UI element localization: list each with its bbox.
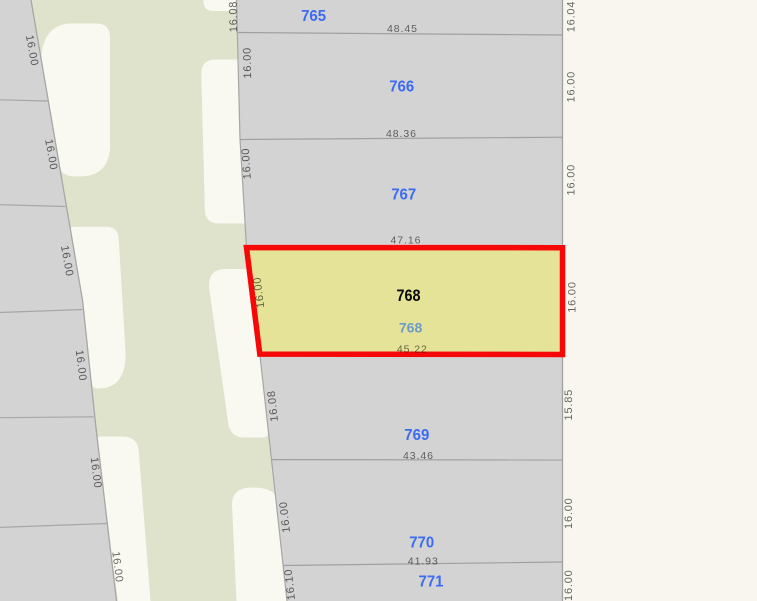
svg-text:15.85: 15.85 — [563, 389, 575, 421]
svg-text:16.04: 16.04 — [566, 1, 578, 33]
svg-text:47.16: 47.16 — [391, 235, 421, 247]
svg-text:771: 771 — [419, 574, 444, 591]
svg-text:16.00: 16.00 — [241, 47, 254, 79]
svg-text:769: 769 — [404, 427, 429, 444]
svg-text:16.00: 16.00 — [563, 497, 575, 529]
svg-text:765: 765 — [301, 8, 326, 25]
svg-text:770: 770 — [409, 535, 434, 552]
svg-text:768: 768 — [397, 287, 421, 305]
svg-text:48.36: 48.36 — [386, 128, 416, 140]
svg-text:43.46: 43.46 — [403, 450, 433, 462]
svg-text:16.00: 16.00 — [566, 164, 578, 196]
svg-text:767: 767 — [391, 186, 416, 203]
svg-text:16.00: 16.00 — [563, 569, 575, 601]
svg-text:45.22: 45.22 — [397, 343, 427, 355]
svg-text:16.00: 16.00 — [566, 71, 578, 103]
svg-text:16.00: 16.00 — [566, 281, 578, 313]
svg-text:16.00: 16.00 — [240, 147, 254, 179]
svg-text:41.93: 41.93 — [408, 556, 438, 568]
svg-text:768: 768 — [399, 320, 423, 336]
svg-text:16.08: 16.08 — [227, 1, 240, 33]
svg-text:766: 766 — [389, 79, 414, 96]
svg-text:48.45: 48.45 — [387, 23, 417, 35]
